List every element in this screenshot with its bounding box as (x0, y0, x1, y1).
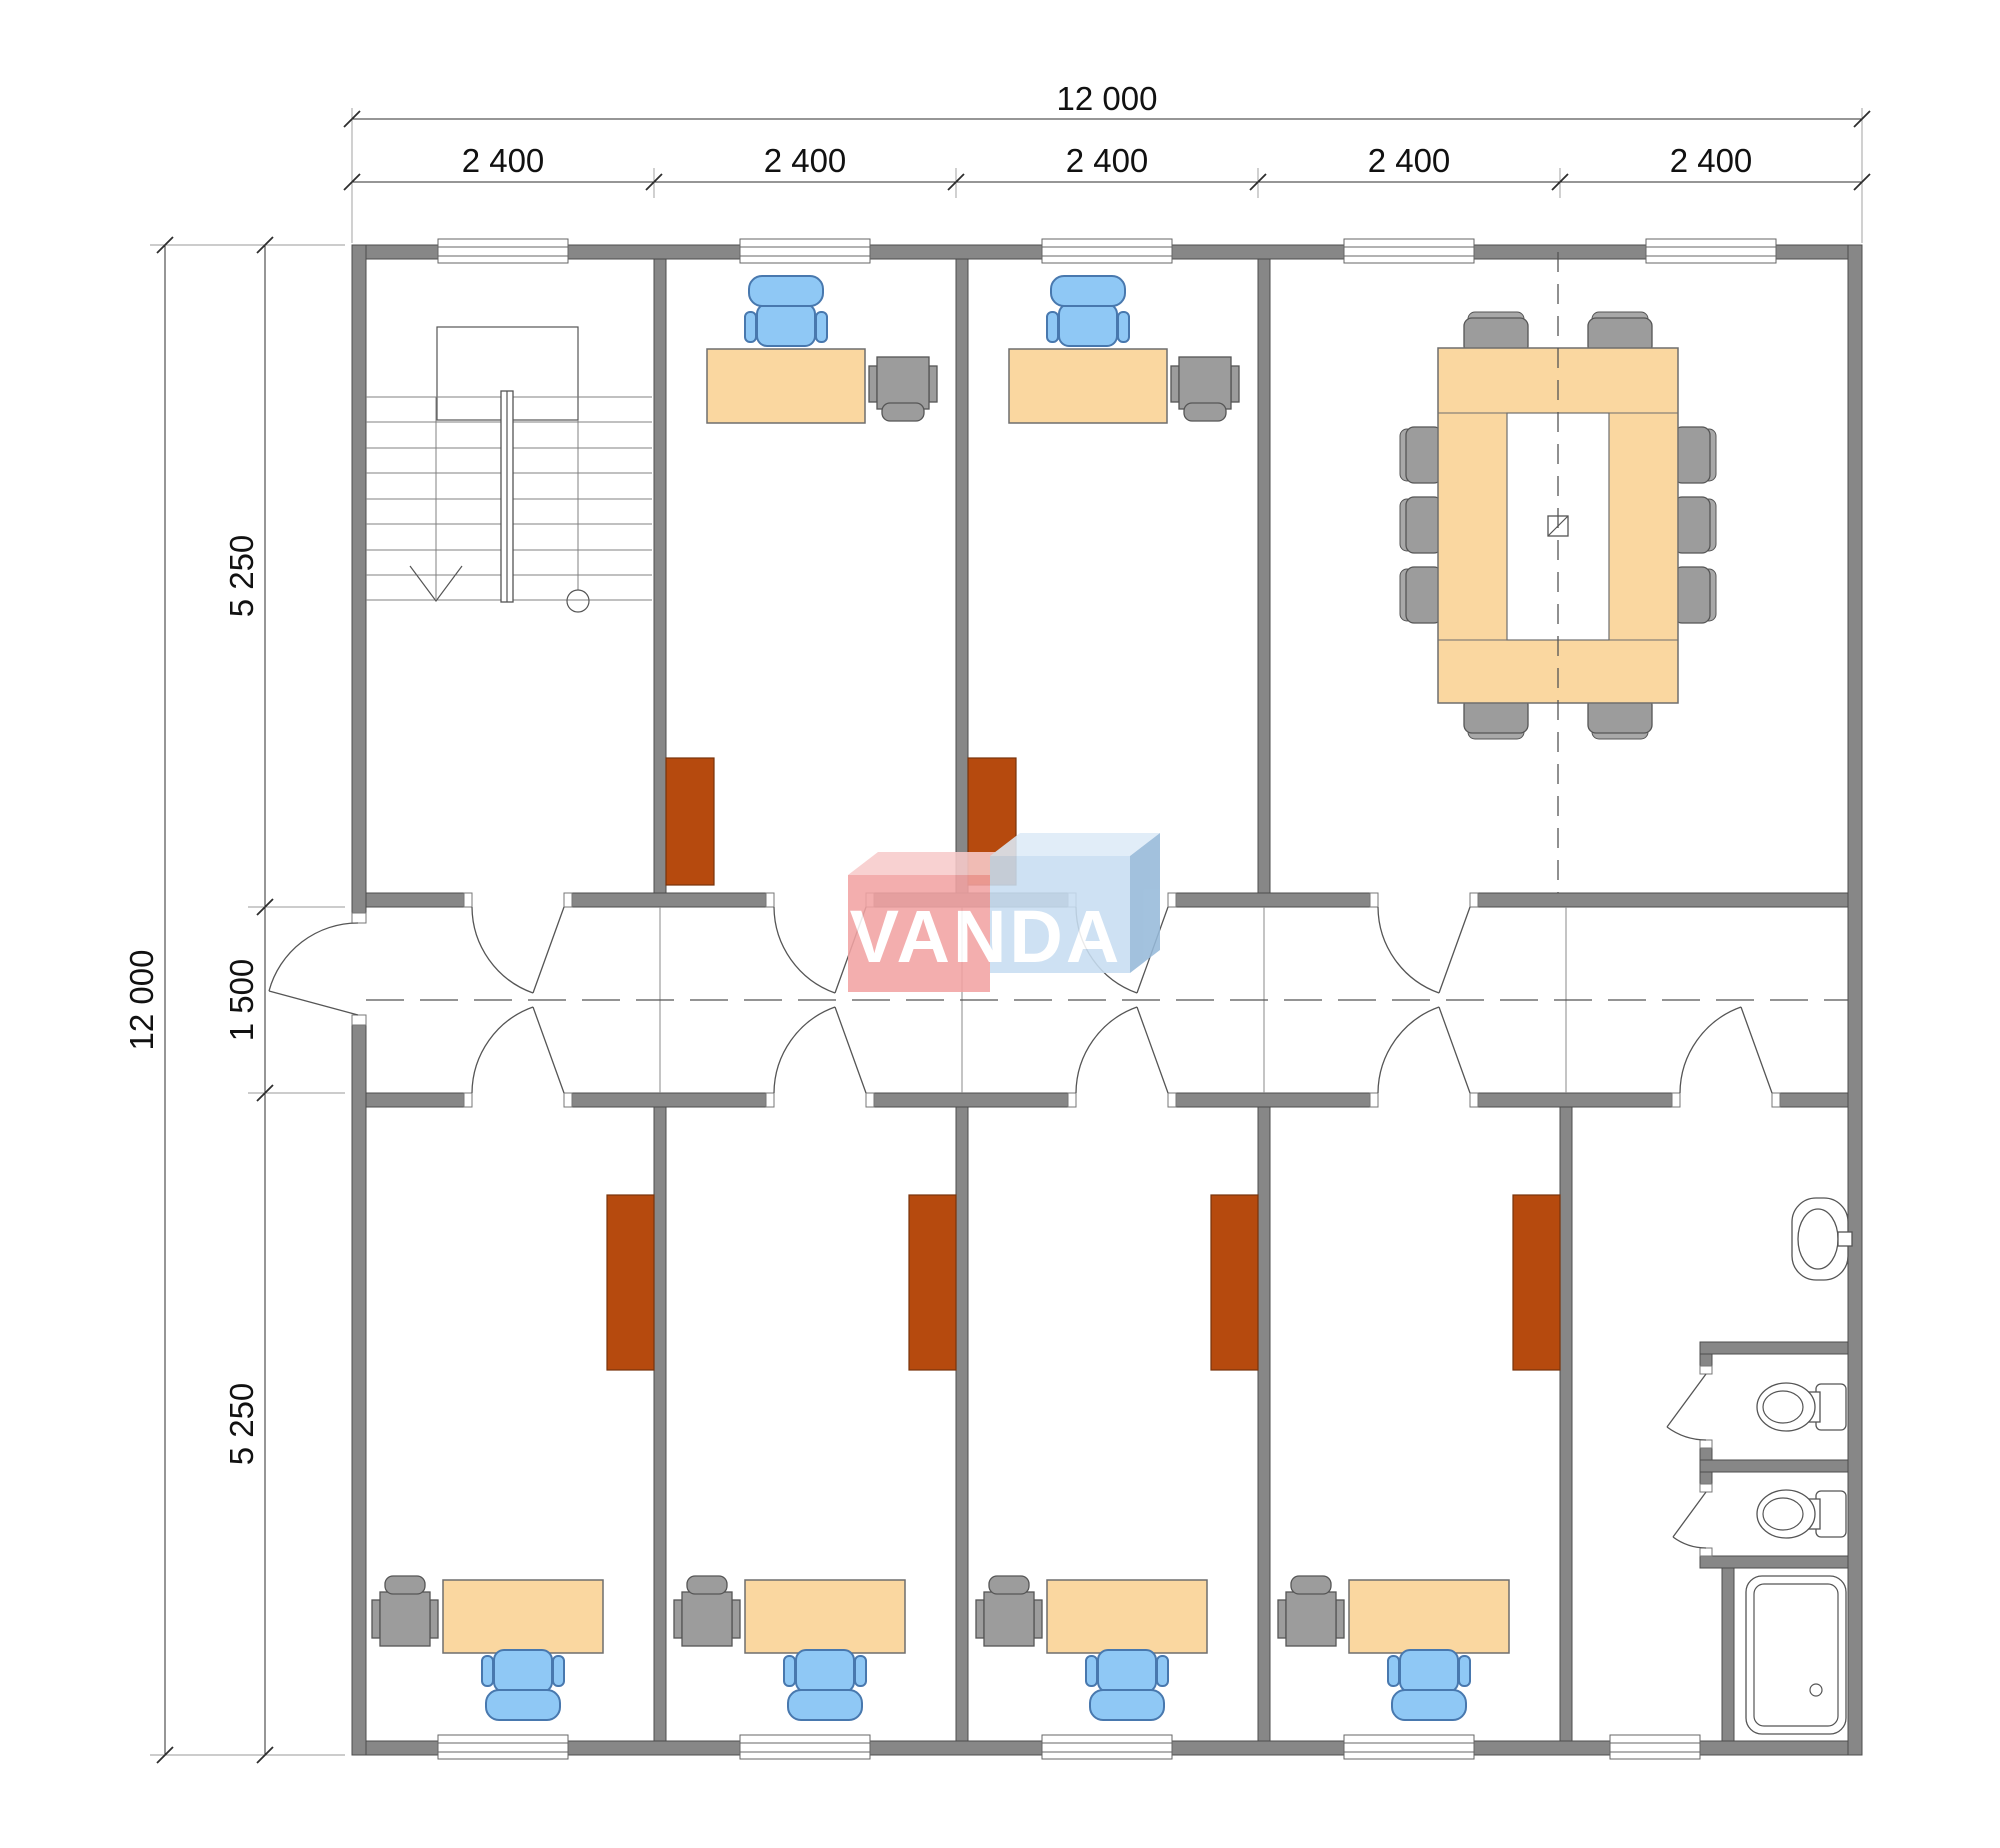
door-conference-room (1378, 907, 1470, 993)
unit-body (1179, 357, 1231, 409)
unit-tab (372, 1600, 380, 1638)
window (438, 239, 568, 263)
dim-overall-height: 12 000 (123, 950, 160, 1051)
dim-bay-3: 2 400 (1066, 142, 1149, 179)
logo-blue-top-face (990, 833, 1160, 856)
cabinet (607, 1195, 654, 1370)
unit-flap (1184, 403, 1226, 421)
unit-flap (989, 1576, 1029, 1594)
chair-seat (796, 1650, 854, 1692)
chair-armrest (1047, 312, 1058, 342)
wall-exterior-right (1848, 245, 1862, 1755)
chair-armrest (816, 312, 827, 342)
chair-armrest (553, 1656, 564, 1686)
cabinet (1211, 1195, 1258, 1370)
toilet (1757, 1490, 1846, 1538)
desk-side-unit (1171, 357, 1239, 421)
chair-headrest (1090, 1690, 1164, 1720)
window (1610, 1735, 1700, 1759)
chair-armrest (855, 1656, 866, 1686)
sink-bowl (1798, 1209, 1838, 1269)
window (1042, 1735, 1172, 1759)
dim-seg-corridor: 1 500 (223, 959, 260, 1042)
window (1344, 1735, 1474, 1759)
conference-chair (1674, 567, 1710, 623)
toilet-bowl (1757, 1383, 1815, 1431)
desk (1349, 1580, 1509, 1653)
office-top-1 (666, 276, 937, 885)
conference-chair (1674, 427, 1710, 483)
floor-plan-drawing: 12 000 2 400 2 400 2 400 2 400 2 400 12 … (0, 0, 2000, 1848)
dim-bay-4: 2 400 (1368, 142, 1451, 179)
office-bottom-3 (976, 1195, 1258, 1720)
chair-armrest (1459, 1656, 1470, 1686)
dim-bay-5: 2 400 (1670, 142, 1753, 179)
unit-tab (1278, 1600, 1286, 1638)
window (1646, 239, 1776, 263)
chair-seat (494, 1650, 552, 1692)
chair-armrest (1388, 1656, 1399, 1686)
stairwell (366, 327, 652, 612)
chair-armrest (1118, 312, 1129, 342)
unit-tab (1336, 1600, 1344, 1638)
unit-tab (1171, 366, 1179, 402)
chair-armrest (745, 312, 756, 342)
office-chair (1388, 1650, 1470, 1720)
chair-headrest (749, 276, 823, 306)
conference-chair (1406, 497, 1442, 553)
office-chair (784, 1650, 866, 1720)
dim-seg-top: 5 250 (223, 535, 260, 618)
desk (745, 1580, 905, 1653)
office-chair (745, 276, 827, 346)
window (1344, 239, 1474, 263)
chair-armrest (482, 1656, 493, 1686)
sink-faucet (1838, 1232, 1852, 1246)
shower-tray (1746, 1576, 1846, 1734)
door-office-bottom-2 (774, 1007, 866, 1093)
desk-side-unit (869, 357, 937, 421)
dim-bay-1: 2 400 (462, 142, 545, 179)
chair-seat (1400, 1650, 1458, 1692)
chair-armrest (784, 1656, 795, 1686)
unit-body (877, 357, 929, 409)
office-bottom-1 (372, 1195, 654, 1720)
floor-plan: 12 000 2 400 2 400 2 400 2 400 2 400 12 … (0, 0, 2000, 1848)
unit-tab (732, 1600, 740, 1638)
wall-exterior-left (352, 245, 366, 1755)
desk-side-unit (976, 1576, 1042, 1646)
unit-body (984, 1592, 1034, 1646)
office-top-2 (968, 276, 1239, 885)
office-chair (1086, 1650, 1168, 1720)
office-bottom-4 (1278, 1195, 1560, 1720)
stair-guideline-start-circle (567, 590, 589, 612)
unit-tab (430, 1600, 438, 1638)
chair-armrest (1086, 1656, 1097, 1686)
office-chair (1047, 276, 1129, 346)
conference-chair (1406, 427, 1442, 483)
chair-armrest (1157, 1656, 1168, 1686)
door-office-bottom-4 (1378, 1007, 1470, 1093)
chair-seat (1098, 1650, 1156, 1692)
toilet (1757, 1383, 1846, 1431)
door-main-entrance (269, 923, 358, 1015)
window (740, 1735, 870, 1759)
desk (707, 349, 865, 423)
cabinet (909, 1195, 956, 1370)
chair-headrest (486, 1690, 560, 1720)
unit-body (1286, 1592, 1336, 1646)
chair-headrest (788, 1690, 862, 1720)
conference-chair (1674, 497, 1710, 553)
toilet-bowl (1757, 1490, 1815, 1538)
door-office-bottom-1 (472, 1007, 564, 1093)
vanda-logo: VANDA (848, 833, 1160, 992)
dim-overall-width: 12 000 (1057, 80, 1158, 117)
window (1042, 239, 1172, 263)
unit-tab (929, 366, 937, 402)
conference-chair (1406, 567, 1442, 623)
desk-side-unit (1278, 1576, 1344, 1646)
conference-room (1400, 252, 1716, 893)
unit-tab (869, 366, 877, 402)
unit-body (380, 1592, 430, 1646)
unit-flap (687, 1576, 727, 1594)
cabinet (1513, 1195, 1560, 1370)
sink (1792, 1198, 1852, 1280)
door-office-bottom-3 (1076, 1007, 1168, 1093)
corridor-south-wall (366, 1093, 1848, 1107)
unit-flap (882, 403, 924, 421)
cabinet (666, 758, 714, 885)
window (438, 1735, 568, 1759)
unit-flap (1291, 1576, 1331, 1594)
shower (1746, 1576, 1846, 1734)
desk (1047, 1580, 1207, 1653)
chair-headrest (1392, 1690, 1466, 1720)
desk (1009, 349, 1167, 423)
door-toilet-stall-1 (1667, 1374, 1706, 1440)
office-bottom-2 (674, 1195, 956, 1720)
desk-side-unit (372, 1576, 438, 1646)
desk-side-unit (674, 1576, 740, 1646)
dim-bay-2: 2 400 (764, 142, 847, 179)
chair-seat (1059, 304, 1117, 346)
door-bathroom (1680, 1007, 1772, 1093)
unit-tab (1034, 1600, 1042, 1638)
unit-body (682, 1592, 732, 1646)
chair-seat (757, 304, 815, 346)
unit-tab (976, 1600, 984, 1638)
window (740, 239, 870, 263)
unit-tab (674, 1600, 682, 1638)
logo-blue-side-face (1130, 833, 1160, 973)
door-stair-hall (472, 907, 564, 993)
unit-flap (385, 1576, 425, 1594)
dim-seg-bottom: 5 250 (223, 1383, 260, 1466)
chair-headrest (1051, 276, 1125, 306)
office-chair (482, 1650, 564, 1720)
unit-tab (1231, 366, 1239, 402)
logo-text: VANDA (850, 895, 1123, 978)
door-toilet-stall-2 (1673, 1492, 1706, 1548)
desk (443, 1580, 603, 1653)
